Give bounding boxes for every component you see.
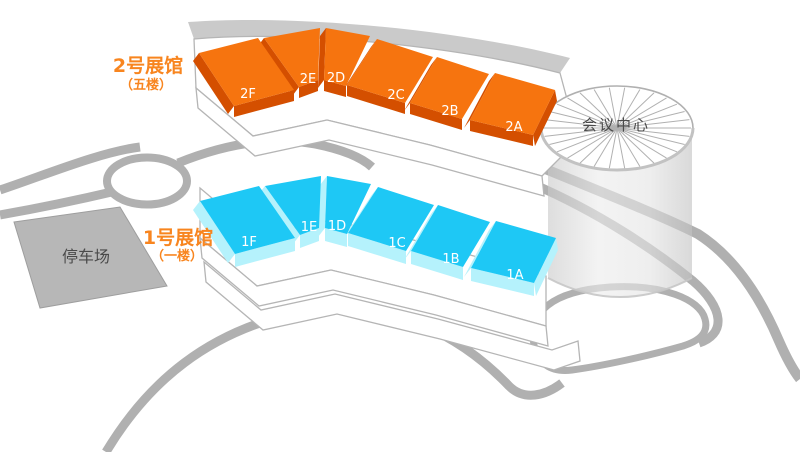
hall-1b-label: 1B (442, 252, 459, 267)
hall-1a-label: 1A (506, 268, 523, 283)
hall1-floor-note: （一楼） (151, 248, 203, 264)
hall2-floor-note: （五楼） (120, 77, 172, 93)
hall-2b-label: 2B (441, 104, 458, 119)
hall2-title-group: 2号展馆 （五楼） (113, 54, 183, 93)
hall-2e-label: 2E (300, 72, 317, 87)
hall-2f-label: 2F (240, 87, 256, 102)
roundabout (107, 158, 187, 205)
hall-1c-label: 1C (388, 236, 405, 251)
hall-1f-label: 1F (241, 235, 257, 250)
hall1-title: 1号展馆 (143, 226, 213, 249)
hall2-title: 2号展馆 (113, 54, 183, 77)
hall-1d-label: 1D (328, 219, 346, 234)
hall-2d-label: 2D (327, 71, 345, 86)
conference-center-label: 会议中心 (582, 116, 650, 134)
hall1-title-group: 1号展馆 （一楼） (143, 226, 213, 264)
parking-lot[interactable]: 停车场 (14, 207, 167, 308)
site-map-canvas: 停车场 (0, 0, 800, 452)
hall-2a-label: 2A (505, 120, 522, 135)
site-map: 停车场 (0, 0, 800, 452)
parking-label: 停车场 (62, 247, 110, 266)
hall-2c-label: 2C (387, 88, 404, 103)
hall-1e-label: 1E (301, 220, 318, 235)
